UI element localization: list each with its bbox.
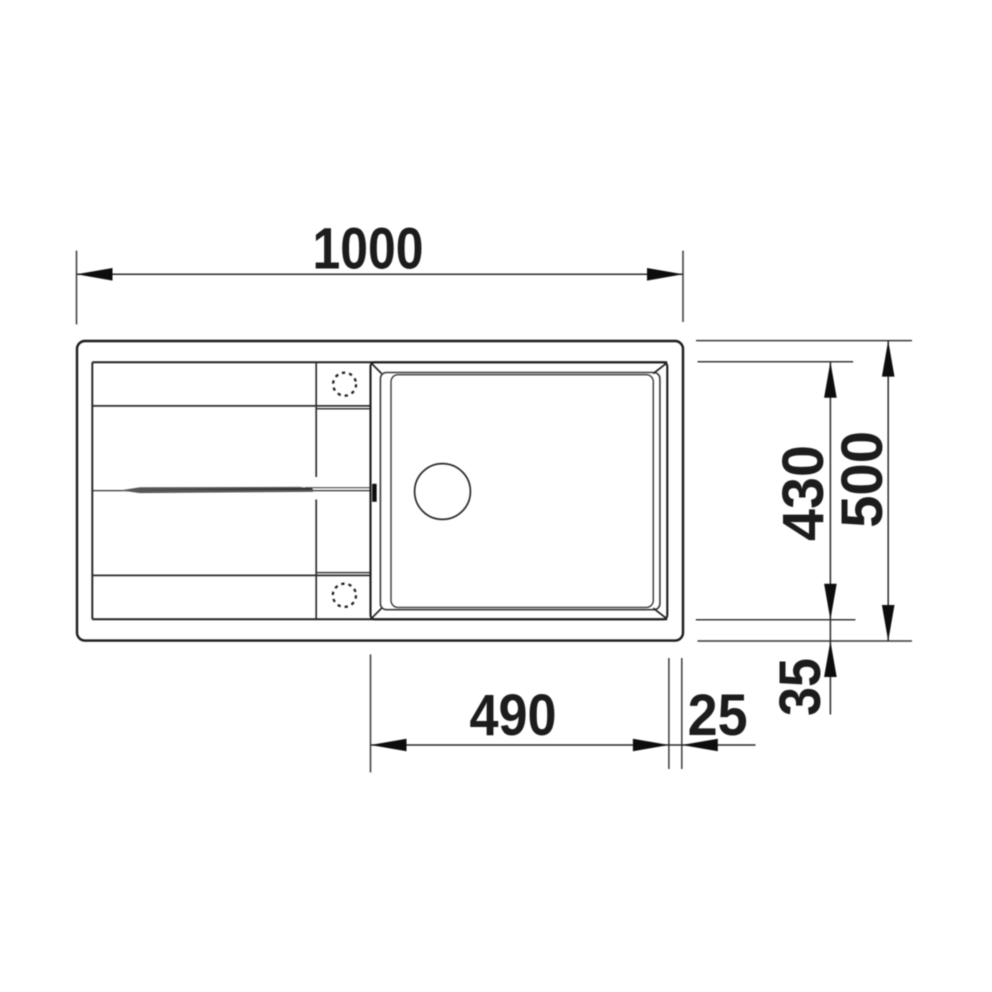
svg-text:25: 25 — [688, 683, 748, 748]
svg-text:500: 500 — [830, 431, 895, 528]
svg-text:490: 490 — [470, 683, 557, 748]
svg-text:35: 35 — [768, 658, 833, 716]
svg-text:1000: 1000 — [313, 216, 424, 281]
svg-text:430: 430 — [771, 445, 836, 541]
